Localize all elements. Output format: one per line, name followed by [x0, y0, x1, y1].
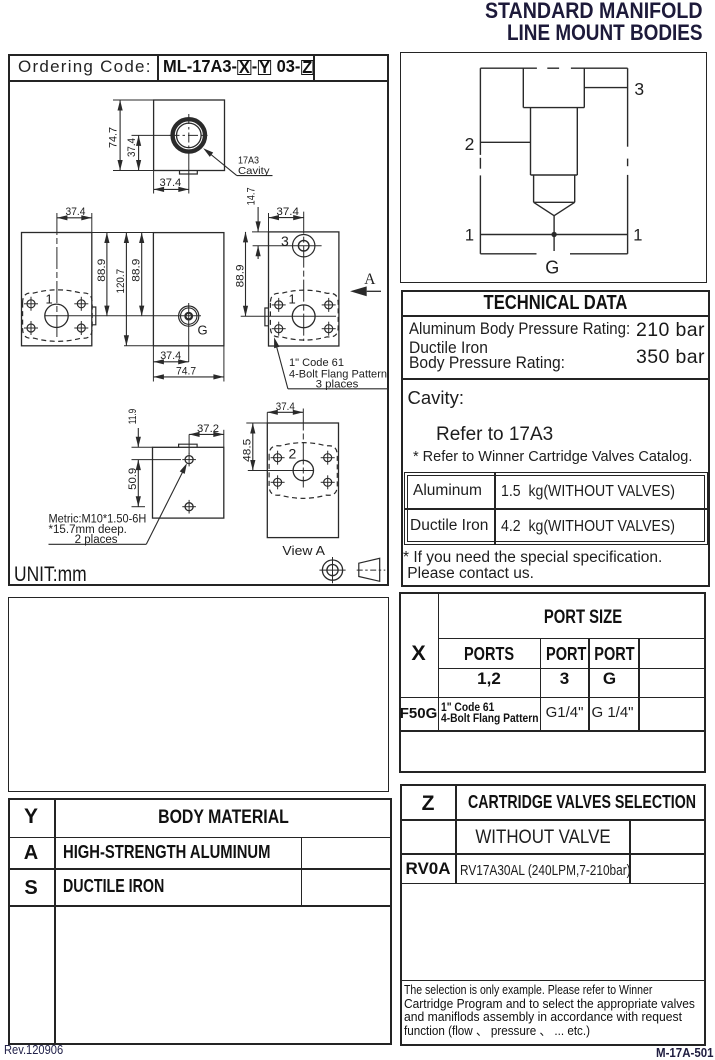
svg-text:37.2: 37.2 [197, 423, 219, 435]
svg-text:View A: View A [282, 544, 325, 558]
svg-text:88.9: 88.9 [235, 264, 247, 287]
svg-text:1: 1 [465, 227, 474, 245]
svg-text:37.4: 37.4 [126, 138, 138, 157]
svg-text:74.7: 74.7 [107, 127, 119, 148]
svg-text:3 places: 3 places [316, 378, 359, 390]
svg-text:G: G [198, 323, 208, 338]
svg-text:1: 1 [46, 292, 53, 307]
svg-text:88.9: 88.9 [96, 259, 108, 282]
svg-text:37.4: 37.4 [276, 401, 295, 413]
svg-text:37.4: 37.4 [66, 206, 86, 218]
svg-text:2: 2 [465, 134, 475, 154]
svg-text:74.7: 74.7 [176, 366, 196, 378]
svg-text:14.7: 14.7 [245, 187, 257, 205]
svg-text:A: A [364, 271, 376, 288]
svg-text:37.4: 37.4 [160, 177, 182, 189]
svg-text:2: 2 [289, 445, 297, 461]
svg-text:50.9: 50.9 [127, 468, 139, 490]
svg-text:1" Code 61: 1" Code 61 [289, 357, 344, 369]
svg-text:37.4: 37.4 [276, 206, 299, 218]
svg-text:3: 3 [634, 79, 644, 99]
svg-text:2 places: 2 places [75, 534, 118, 546]
svg-text:88.9: 88.9 [131, 259, 143, 282]
svg-text:48.5: 48.5 [242, 439, 254, 462]
svg-text:3: 3 [281, 233, 289, 249]
svg-text:37.4: 37.4 [160, 350, 181, 362]
svg-text:Cavity: Cavity [238, 165, 270, 177]
svg-text:G: G [545, 258, 559, 278]
svg-text:1: 1 [289, 292, 296, 307]
svg-text:120.7: 120.7 [115, 269, 127, 294]
svg-text:11.9: 11.9 [127, 409, 139, 425]
svg-text:1: 1 [633, 227, 642, 245]
